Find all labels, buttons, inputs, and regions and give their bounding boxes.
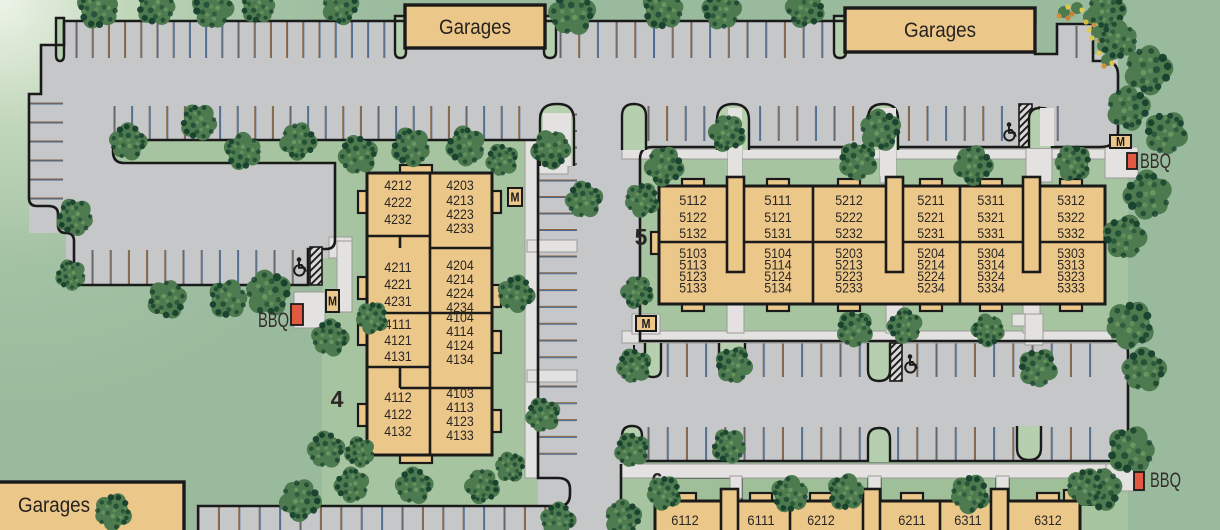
svg-text:4233: 4233 (446, 220, 474, 236)
svg-text:5134: 5134 (764, 280, 792, 296)
svg-text:4122: 4122 (384, 406, 412, 422)
svg-text:6311: 6311 (954, 512, 982, 528)
svg-text:4132: 4132 (384, 423, 412, 439)
svg-text:5222: 5222 (835, 209, 863, 225)
svg-text:4231: 4231 (384, 293, 412, 309)
svg-text:M: M (328, 295, 337, 309)
svg-text:5332: 5332 (1057, 225, 1085, 241)
svg-text:5131: 5131 (764, 225, 792, 241)
svg-text:4133: 4133 (446, 427, 474, 443)
svg-text:4131: 4131 (384, 348, 412, 364)
svg-text:4121: 4121 (384, 332, 412, 348)
svg-text:4112: 4112 (384, 389, 412, 405)
svg-text:6211: 6211 (898, 512, 926, 528)
svg-text:6312: 6312 (1034, 512, 1062, 528)
svg-text:6111: 6111 (747, 512, 775, 528)
svg-text:5233: 5233 (835, 280, 863, 296)
svg-text:5231: 5231 (917, 225, 945, 241)
svg-text:Garages: Garages (439, 16, 511, 39)
svg-text:5: 5 (635, 224, 648, 250)
svg-text:4232: 4232 (384, 211, 412, 227)
svg-text:5311: 5311 (977, 192, 1005, 208)
svg-text:4212: 4212 (384, 177, 412, 193)
svg-text:4221: 4221 (384, 276, 412, 292)
svg-text:5221: 5221 (917, 209, 945, 225)
svg-text:5334: 5334 (977, 280, 1005, 296)
svg-text:Garages: Garages (904, 19, 976, 42)
svg-text:5112: 5112 (679, 192, 707, 208)
svg-text:5232: 5232 (835, 225, 863, 241)
svg-text:Garages: Garages (18, 494, 90, 517)
svg-text:5312: 5312 (1057, 192, 1085, 208)
svg-text:4: 4 (331, 386, 344, 412)
svg-text:M: M (1116, 135, 1125, 149)
svg-text:6212: 6212 (807, 512, 835, 528)
svg-text:BBQ: BBQ (258, 309, 289, 332)
svg-text:5331: 5331 (977, 225, 1005, 241)
svg-text:5333: 5333 (1057, 280, 1085, 296)
svg-text:6112: 6112 (671, 512, 699, 528)
svg-text:BBQ: BBQ (1150, 469, 1181, 492)
svg-text:5321: 5321 (977, 209, 1005, 225)
svg-text:4134: 4134 (446, 351, 474, 367)
svg-text:5211: 5211 (917, 192, 945, 208)
svg-text:M: M (511, 191, 520, 205)
svg-text:5121: 5121 (764, 209, 792, 225)
svg-text:5122: 5122 (679, 209, 707, 225)
svg-text:5111: 5111 (764, 192, 792, 208)
svg-text:4211: 4211 (384, 259, 412, 275)
svg-text:4111: 4111 (384, 316, 412, 332)
svg-text:BBQ: BBQ (1140, 150, 1171, 173)
svg-text:5322: 5322 (1057, 209, 1085, 225)
svg-text:5234: 5234 (917, 280, 945, 296)
svg-text:4203: 4203 (446, 177, 474, 193)
svg-text:4222: 4222 (384, 194, 412, 210)
svg-text:5132: 5132 (679, 225, 707, 241)
svg-text:M: M (642, 317, 651, 331)
svg-text:5133: 5133 (679, 280, 707, 296)
svg-text:5212: 5212 (835, 192, 863, 208)
